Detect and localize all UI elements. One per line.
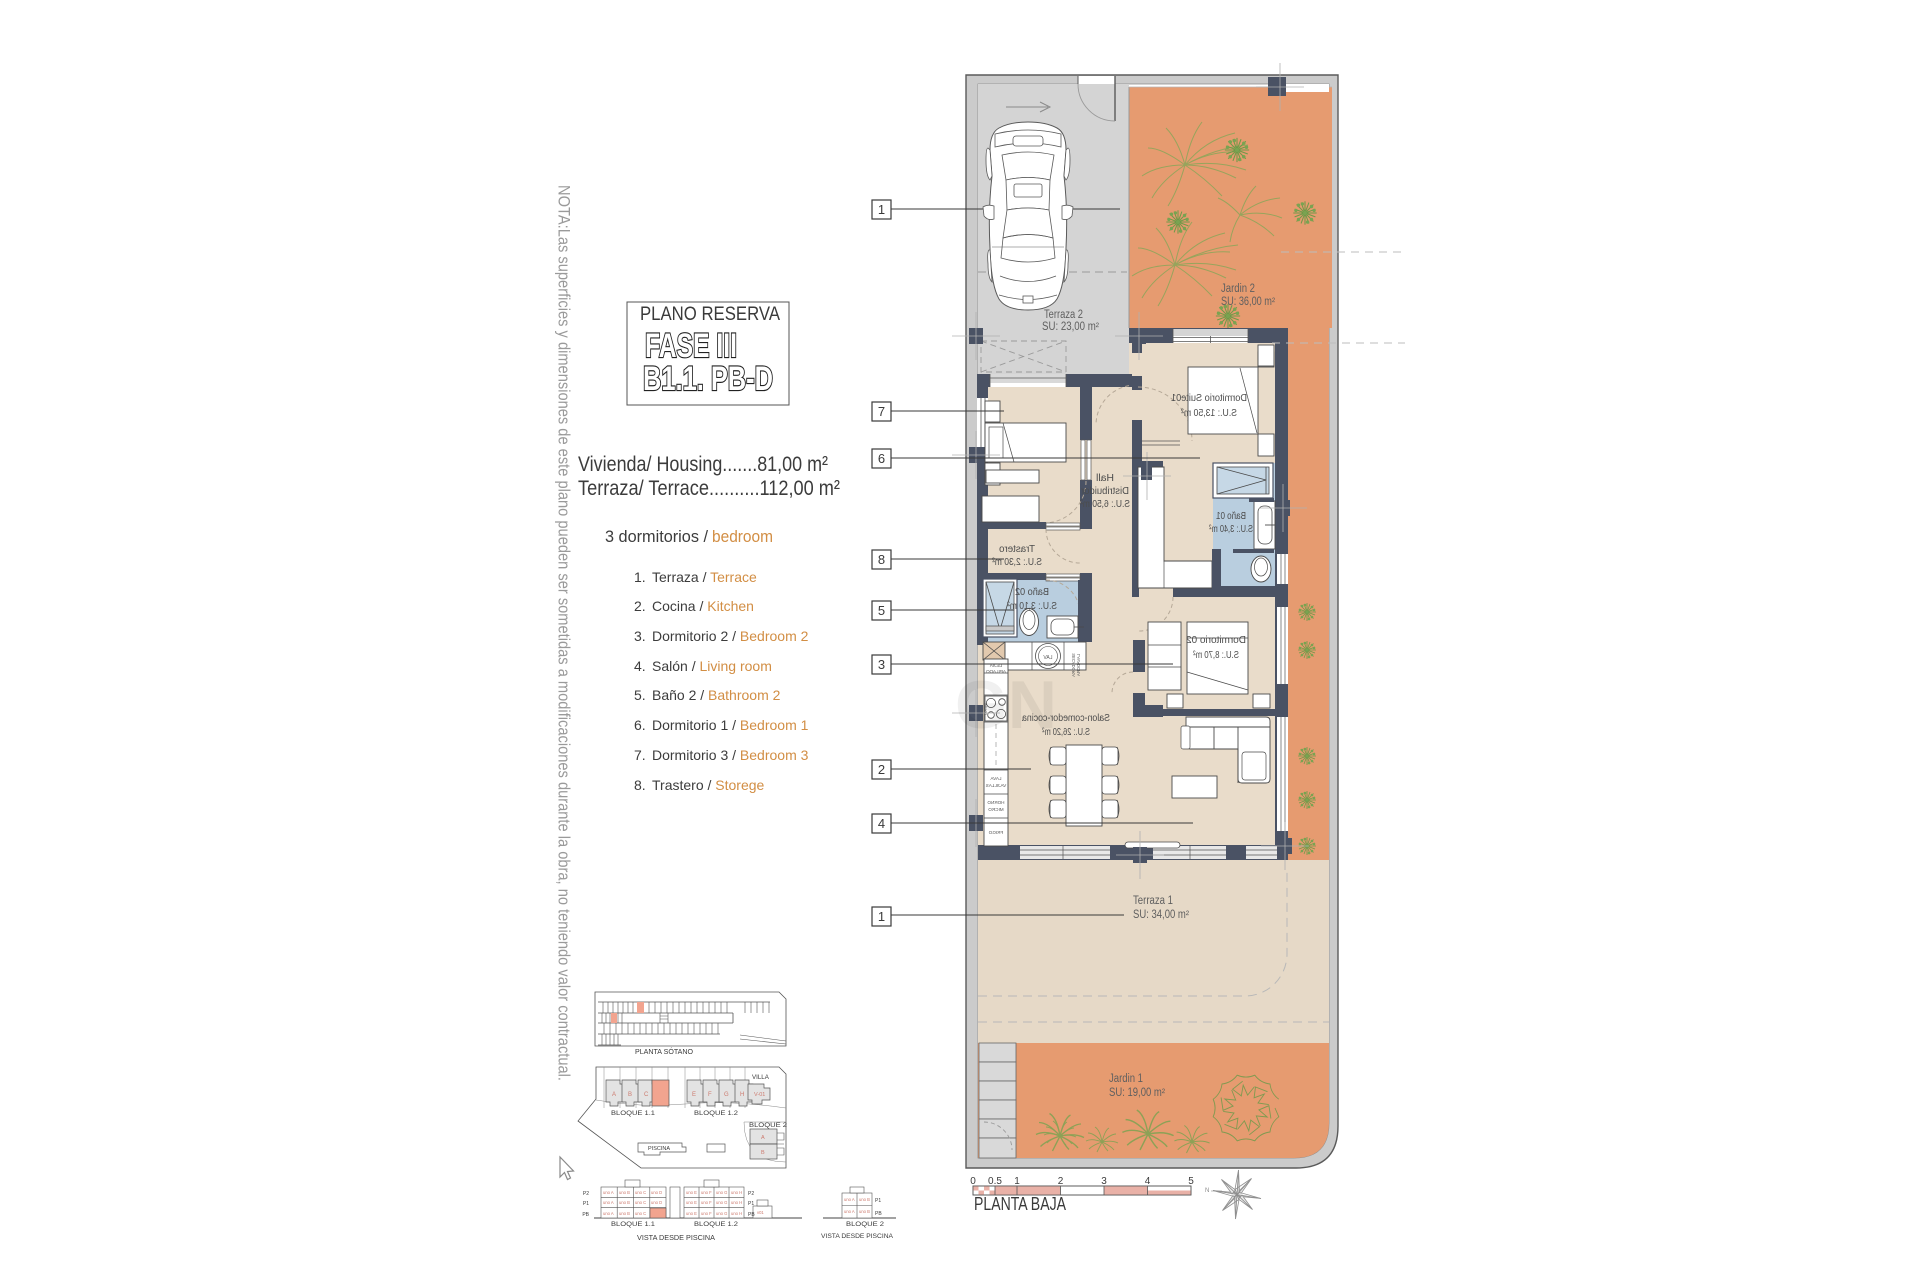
svg-text:8: 8 <box>878 552 885 567</box>
svg-text:P1: P1 <box>875 1198 881 1204</box>
svg-text:Distribuidor: Distribuidor <box>1081 485 1129 497</box>
svg-text:uno B: uno B <box>619 1211 630 1216</box>
svg-text:Vivienda/ Housing.......81,00: Vivienda/ Housing.......81,00 m² <box>578 453 828 476</box>
svg-text:VAJILLAS: VAJILLAS <box>986 783 1007 788</box>
svg-text:S.U.: 6,50 m²: S.U.: 6,50 m² <box>1080 498 1130 510</box>
svg-text:SU: 23,00 m²: SU: 23,00 m² <box>1042 321 1099 333</box>
svg-text:Jardin 1: Jardin 1 <box>1109 1073 1143 1085</box>
svg-text:7: 7 <box>878 404 885 419</box>
svg-text:A: A <box>612 1092 616 1098</box>
svg-text:v01: v01 <box>757 1210 764 1215</box>
svg-text:Baño 2 / Bathroom 2: Baño 2 / Bathroom 2 <box>652 687 781 703</box>
svg-text:P2: P2 <box>748 1191 754 1197</box>
svg-text:5: 5 <box>1188 1176 1194 1187</box>
svg-text:SU: 34,00 m²: SU: 34,00 m² <box>1133 909 1189 921</box>
svg-text:LAV: LAV <box>1043 655 1053 661</box>
svg-text:bedroom: bedroom <box>712 527 773 546</box>
svg-text:Terraza / Terrace: Terraza / Terrace <box>652 569 757 585</box>
svg-text:uno E: uno E <box>686 1211 697 1216</box>
svg-text:S.U.: 2,30 m²: S.U.: 2,30 m² <box>992 556 1042 568</box>
svg-text:4.: 4. <box>634 658 646 674</box>
svg-text:1.: 1. <box>634 569 646 585</box>
svg-text:3 dormitorios /: 3 dormitorios / <box>605 527 708 546</box>
svg-text:V-01: V-01 <box>754 1092 765 1098</box>
svg-text:7.: 7. <box>634 747 646 763</box>
svg-text:G: G <box>724 1092 729 1098</box>
svg-text:uno H: uno H <box>731 1200 742 1205</box>
svg-text:uno A: uno A <box>603 1200 614 1205</box>
svg-text:uno A: uno A <box>844 1209 855 1214</box>
svg-text:P2: P2 <box>583 1191 589 1197</box>
svg-text:uno H: uno H <box>731 1211 742 1216</box>
svg-text:uno E: uno E <box>686 1190 697 1195</box>
svg-text:uno B: uno B <box>619 1200 630 1205</box>
svg-text:5: 5 <box>878 603 885 618</box>
svg-text:SU: 36,00 m²: SU: 36,00 m² <box>1221 296 1275 308</box>
svg-text:LAVA: LAVA <box>990 776 1002 781</box>
svg-text:3: 3 <box>1101 1176 1107 1187</box>
svg-text:uno D: uno D <box>651 1200 662 1205</box>
svg-text:1: 1 <box>1014 1176 1020 1187</box>
svg-text:Baño 02: Baño 02 <box>1015 586 1049 598</box>
svg-text:uno C: uno C <box>635 1211 646 1216</box>
svg-text:uno C: uno C <box>635 1190 646 1195</box>
svg-text:uno A: uno A <box>844 1197 855 1202</box>
svg-text:uno F: uno F <box>701 1200 712 1205</box>
svg-text:BLOQUE 1.2: BLOQUE 1.2 <box>694 1221 739 1228</box>
svg-text:S.U.: 13,50 m²: S.U.: 13,50 m² <box>1181 407 1237 419</box>
svg-text:Dormitorio 2 / Bedroom 2: Dormitorio 2 / Bedroom 2 <box>652 628 809 644</box>
svg-text:6.: 6. <box>634 717 646 733</box>
svg-text:Jardin 2: Jardin 2 <box>1221 283 1255 295</box>
svg-text:BLOQUE 1.2: BLOQUE 1.2 <box>694 1110 739 1117</box>
svg-text:S.U.: 3,10 m²: S.U.: 3,10 m² <box>1007 600 1057 612</box>
svg-text:NOTA:Las superficies y dimensi: NOTA:Las superficies y dimensiones de es… <box>555 185 574 1081</box>
svg-text:PISCINA: PISCINA <box>648 1146 670 1152</box>
svg-text:uno A: uno A <box>603 1211 614 1216</box>
svg-text:Terraza 1: Terraza 1 <box>1133 895 1173 907</box>
svg-text:PLANO RESERVA: PLANO RESERVA <box>640 304 780 325</box>
svg-text:uno F: uno F <box>701 1211 712 1216</box>
svg-text:VILLA: VILLA <box>752 1074 770 1081</box>
svg-text:MICRO: MICRO <box>988 807 1004 812</box>
svg-text:GN: GN <box>955 667 1057 743</box>
svg-text:P1: P1 <box>583 1201 589 1207</box>
svg-text:0.5: 0.5 <box>988 1176 1002 1187</box>
svg-text:Cocina / Kitchen: Cocina / Kitchen <box>652 598 754 614</box>
svg-text:2.: 2. <box>634 598 646 614</box>
svg-text:B: B <box>628 1092 632 1098</box>
svg-text:Dormitorio Suite01: Dormitorio Suite01 <box>1171 392 1247 404</box>
svg-text:Dormitorio 3 / Bedroom 3: Dormitorio 3 / Bedroom 3 <box>652 747 809 763</box>
svg-text:Dormitorio 1 / Bedroom 1: Dormitorio 1 / Bedroom 1 <box>652 717 809 733</box>
svg-text:Hall: Hall <box>1096 472 1114 484</box>
svg-text:3: 3 <box>878 657 885 672</box>
svg-text:4: 4 <box>878 816 885 831</box>
svg-text:uno E: uno E <box>686 1200 697 1205</box>
svg-text:2: 2 <box>878 762 885 777</box>
svg-text:uno B: uno B <box>619 1190 630 1195</box>
svg-text:BLOQUE 1.1: BLOQUE 1.1 <box>611 1110 656 1117</box>
svg-text:1: 1 <box>878 909 885 924</box>
svg-text:4: 4 <box>1145 1176 1151 1187</box>
svg-text:Trastero / Storege: Trastero / Storege <box>652 777 765 793</box>
svg-text:C: C <box>644 1092 649 1098</box>
svg-text:PB: PB <box>582 1212 589 1218</box>
svg-text:5.: 5. <box>634 687 646 703</box>
svg-text:uno G: uno G <box>716 1211 727 1216</box>
svg-text:1: 1 <box>878 202 885 217</box>
svg-text:VISTA DESDE PISCINA: VISTA DESDE PISCINA <box>821 1233 894 1240</box>
svg-text:BLOQUE 2: BLOQUE 2 <box>846 1221 885 1228</box>
svg-text:uno F: uno F <box>701 1190 712 1195</box>
svg-text:PLANTA SÓTANO: PLANTA SÓTANO <box>635 1047 694 1056</box>
svg-text:LAVADORA: LAVADORA <box>1076 654 1081 676</box>
svg-text:B1.1. PB-D: B1.1. PB-D <box>643 360 773 398</box>
svg-text:PB: PB <box>748 1212 755 1218</box>
svg-text:uno H: uno H <box>731 1190 742 1195</box>
svg-text:Terraza/ Terrace..........112,: Terraza/ Terrace..........112,00 m² <box>578 477 840 500</box>
svg-text:Terraza 2: Terraza 2 <box>1044 309 1083 321</box>
svg-text:F: F <box>708 1092 712 1098</box>
svg-text:P1: P1 <box>748 1201 754 1207</box>
svg-text:6: 6 <box>878 451 885 466</box>
svg-text:VISTA DESDE PISCINA: VISTA DESDE PISCINA <box>637 1235 715 1242</box>
svg-text:E: E <box>692 1092 696 1098</box>
svg-text:uno B: uno B <box>859 1197 870 1202</box>
svg-text:BLOQUE 1.1: BLOQUE 1.1 <box>611 1221 656 1228</box>
svg-text:BLOQUE 2: BLOQUE 2 <box>749 1122 788 1129</box>
svg-text:0: 0 <box>970 1176 976 1187</box>
svg-text:uno A: uno A <box>603 1190 614 1195</box>
svg-text:8.: 8. <box>634 777 646 793</box>
svg-text:B: B <box>761 1150 765 1156</box>
svg-text:uno G: uno G <box>716 1190 727 1195</box>
svg-text:Salón / Living room: Salón / Living room <box>652 658 772 674</box>
svg-text:FRIGO: FRIGO <box>988 830 1003 835</box>
svg-text:Dormitorio 02: Dormitorio 02 <box>1186 634 1246 646</box>
svg-text:H: H <box>740 1092 744 1098</box>
svg-text:uno B: uno B <box>859 1209 870 1214</box>
svg-text:N: N <box>1205 1188 1209 1194</box>
svg-text:PLANTA BAJA: PLANTA BAJA <box>974 1194 1066 1214</box>
svg-text:HORNO: HORNO <box>987 800 1005 805</box>
svg-text:3.: 3. <box>634 628 646 644</box>
svg-text:uno D: uno D <box>651 1190 662 1195</box>
svg-text:2: 2 <box>1058 1176 1064 1187</box>
svg-text:Baño 01: Baño 01 <box>1216 510 1246 522</box>
svg-text:uno C: uno C <box>635 1200 646 1205</box>
svg-text:PB: PB <box>875 1211 882 1217</box>
svg-text:A: A <box>761 1135 765 1141</box>
svg-text:S.U.: 3,40 m²: S.U.: 3,40 m² <box>1209 523 1253 535</box>
svg-text:Trastero: Trastero <box>999 543 1035 555</box>
svg-text:S.U.: 8,70 m²: S.U.: 8,70 m² <box>1193 649 1239 661</box>
svg-text:uno G: uno G <box>716 1200 727 1205</box>
svg-text:SU: 19,00 m²: SU: 19,00 m² <box>1109 1087 1165 1099</box>
